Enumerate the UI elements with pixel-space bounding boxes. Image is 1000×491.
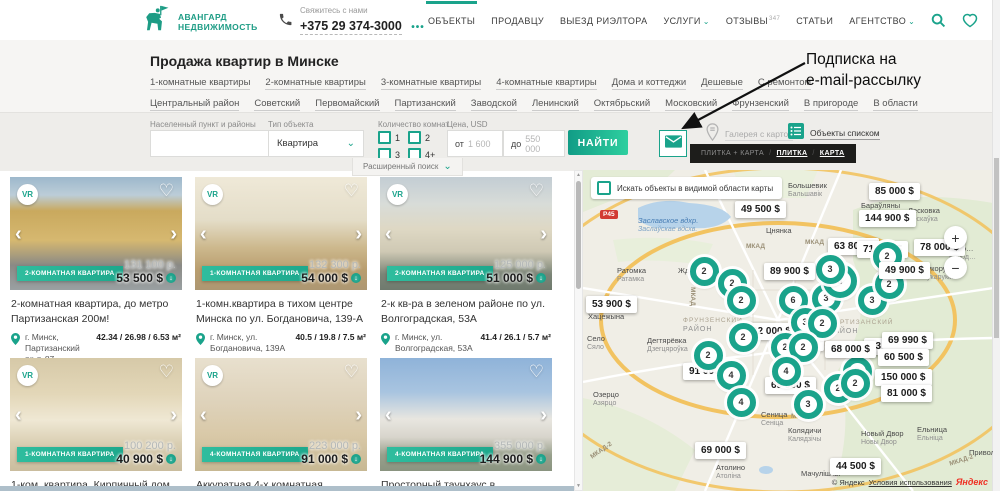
- map-price-label[interactable]: 144 900 $: [859, 210, 916, 227]
- view-mode-option[interactable]: КАРТА: [820, 150, 845, 157]
- listing-card[interactable]: VR♡‹›4-КОМНАТНАЯ КВАРТИРА223 000 р.91 00…: [195, 358, 367, 491]
- objects-list-label: Объекты списком: [810, 128, 880, 140]
- map-copyright: © Яндекс Условия использования Яндекс: [832, 477, 988, 487]
- nav-item-6[interactable]: АГЕНТСТВО⌄: [849, 1, 915, 40]
- map-place-label: Новый ДворНовы Двор: [861, 429, 904, 447]
- filter-link[interactable]: Первомайский: [315, 98, 379, 111]
- map-price-label[interactable]: 68 000 $: [825, 341, 876, 358]
- price-drop-icon: ↓: [351, 273, 361, 283]
- vr-tour-badge: VR: [202, 365, 223, 386]
- listing-photo-townhouse[interactable]: ♡‹›4-КОМНАТНАЯ КВАРТИРА355 000 р.144 900…: [380, 358, 552, 471]
- separator: /: [769, 150, 771, 157]
- map-price-label[interactable]: 49 500 $: [735, 201, 786, 218]
- price-drop-icon: ↓: [536, 273, 546, 283]
- place-name: Цнянка: [766, 226, 792, 235]
- place-name: МКАД: [689, 287, 696, 306]
- place-name: Новый Двор: [861, 429, 904, 438]
- listing-card[interactable]: VR♡‹›2-КОМНАТНАЯ КВАРТИРА125 000 р.51 00…: [380, 177, 552, 354]
- map-cluster-marker[interactable]: 4: [727, 388, 756, 417]
- chevron-down-icon: ⌄: [443, 161, 451, 172]
- map-cluster-marker[interactable]: 4: [772, 357, 801, 386]
- listing-photo-yellow-building[interactable]: VR♡‹›2-КОМНАТНАЯ КВАРТИРА131 100 р.53 50…: [10, 177, 182, 290]
- photo-prev-arrow[interactable]: ‹: [200, 408, 207, 422]
- listings-scrollbar[interactable]: ▲ ▼: [574, 170, 583, 491]
- map-pin-icon: [196, 333, 205, 354]
- type-filter-label: Тип объекта: [268, 120, 313, 129]
- yandex-map[interactable]: Искать объекты в видимой области карты Р…: [583, 170, 993, 491]
- map-place-label: МКАД: [805, 238, 824, 247]
- price-drop-icon: ↓: [536, 454, 546, 464]
- room-count-badge: 4-КОМНАТНАЯ КВАРТИРА: [202, 447, 308, 462]
- map-place-label: Бараўляны: [861, 201, 900, 210]
- listing-title[interactable]: 1-комн.квартира в тихом центре Минска по…: [196, 297, 366, 327]
- map-place-label: МКАД: [688, 287, 697, 306]
- nav-item-4[interactable]: ОТЗЫВЫ347: [726, 1, 780, 40]
- nav-item-label: ПРОДАВЦУ: [491, 16, 544, 26]
- map-cluster-marker[interactable]: 2: [808, 309, 837, 338]
- photo-prev-arrow[interactable]: ‹: [385, 227, 392, 241]
- vr-tour-badge: VR: [387, 184, 408, 205]
- search-in-map-area-checkbox[interactable]: Искать объекты в видимой области карты: [591, 177, 782, 199]
- rooms-filter-label: Количество комнат: [378, 120, 449, 129]
- price-byn: 355 000 р.: [480, 440, 546, 452]
- price-to-input[interactable]: до550 000: [503, 130, 565, 157]
- map-place-label: ОзерцоАзярцо: [593, 390, 619, 408]
- favorite-heart-icon[interactable]: ♡: [159, 181, 174, 201]
- map-price-label[interactable]: 69 990 $: [882, 332, 933, 349]
- nav-item-0[interactable]: ОБЪЕКТЫ: [428, 1, 475, 40]
- page-scrollbar[interactable]: [992, 0, 1000, 491]
- road-number-badge: Р45: [600, 210, 618, 219]
- scroll-up-arrow[interactable]: ▲: [575, 172, 582, 178]
- map-price-label[interactable]: 53 900 $: [586, 296, 637, 313]
- filter-link[interactable]: Ленинский: [532, 98, 579, 111]
- filter-link[interactable]: 1-комнатные квартиры: [150, 77, 250, 90]
- map-price-label[interactable]: 89 900 $: [764, 263, 815, 280]
- view-mode-option[interactable]: ПЛИТКА + КАРТА: [701, 150, 764, 157]
- place-name: Большевик: [788, 181, 827, 190]
- vr-tour-badge: VR: [17, 365, 38, 386]
- nav-item-3[interactable]: УСЛУГИ⌄: [663, 1, 709, 40]
- phone-label: Свяжитесь с нами: [300, 6, 425, 15]
- listing-address: г. Минск, ул. Волгоградская, 53А: [395, 332, 475, 354]
- filter-link[interactable]: 2-комнатные квартиры: [265, 77, 365, 90]
- chevron-down-icon: ⌄: [908, 17, 915, 26]
- listing-card[interactable]: VR♡‹›1-КОМНАТНАЯ КВАРТИРА132 300 р.54 00…: [195, 177, 367, 354]
- nav-item-1[interactable]: ПРОДАВЦУ: [491, 1, 544, 40]
- logo[interactable]: АВАНГАРД НЕДВИЖИМОСТЬ: [142, 4, 258, 39]
- price-block: 223 000 р.91 000 $↓: [301, 440, 361, 466]
- place-name: Колядичи: [788, 426, 821, 435]
- price-byn: 125 000 р.: [486, 259, 546, 271]
- annotation-text: Подписка на e-mail-рассылку: [806, 49, 921, 91]
- chevron-down-icon: ⌄: [347, 138, 355, 149]
- map-price-label[interactable]: 49 900 $: [879, 262, 930, 279]
- advanced-search-toggle[interactable]: Расширенный поиск⌄: [352, 158, 463, 176]
- photo-next-arrow[interactable]: ›: [170, 227, 177, 241]
- terms-of-use-link[interactable]: Условия использования: [869, 478, 952, 487]
- price-block: 132 300 р.54 000 $↓: [301, 259, 361, 285]
- vr-tour-badge: VR: [202, 184, 223, 205]
- checkbox-icon[interactable]: [597, 181, 611, 195]
- place-name: ПАРТИЗАНСКИЙ: [829, 319, 893, 326]
- favorite-heart-icon[interactable]: ♡: [529, 181, 544, 201]
- listing-photo-living-room[interactable]: VR♡‹›1-КОМНАТНАЯ КВАРТИРА132 300 р.54 00…: [195, 177, 367, 290]
- place-name-alt: Заслаўскае вдсхв.: [638, 225, 698, 234]
- filter-link[interactable]: Партизанский: [395, 98, 456, 111]
- search-in-map-area-label: Искать объекты в видимой области карты: [617, 184, 773, 193]
- map-place-label: РатомкаРатамка: [617, 266, 646, 284]
- photo-prev-arrow[interactable]: ‹: [15, 408, 22, 422]
- vr-tour-badge: VR: [17, 184, 38, 205]
- price-block: 131 100 р.53 500 $↓: [116, 259, 176, 285]
- price-block: 100 200 р.40 900 $↓: [116, 440, 176, 466]
- price-usd: 51 000 $↓: [486, 271, 546, 285]
- map-price-label[interactable]: 44 500 $: [830, 458, 881, 475]
- price-drop-icon: ↓: [351, 454, 361, 464]
- search-icon[interactable]: [931, 13, 946, 28]
- map-place-label: БольшевикБальшавік: [788, 181, 827, 199]
- price-usd: 53 500 $↓: [116, 271, 176, 285]
- map-place-label: СелоСяло: [587, 334, 605, 352]
- page-scrollbar-thumb[interactable]: [994, 158, 999, 338]
- place-name-alt: Дзегцяроўка: [647, 345, 688, 354]
- place-name: Сеница: [761, 410, 787, 419]
- room-count-badge: 2-КОМНАТНАЯ КВАРТИРА: [17, 266, 123, 281]
- price-usd-value: 54 000 $: [301, 271, 348, 285]
- listings-scrollbar-thumb[interactable]: [576, 181, 581, 289]
- map-pin-icon: [381, 333, 390, 354]
- annotation-arrow: [655, 53, 815, 143]
- map-place-label: ДегтярёвкаДзегцяроўка: [647, 336, 688, 354]
- map-cluster-marker[interactable]: 3: [816, 255, 845, 284]
- listing-title[interactable]: 2-к кв-ра в зеленом районе по ул. Волгог…: [381, 297, 551, 327]
- map-cluster-marker[interactable]: 2: [694, 341, 723, 370]
- map-place-label: МКАД: [746, 242, 765, 251]
- chevron-down-icon: ⌄: [703, 17, 710, 26]
- place-name: Ратомка: [617, 266, 646, 275]
- place-name-alt: Азярцо: [593, 399, 619, 408]
- favorite-heart-icon[interactable]: ♡: [159, 362, 174, 382]
- place-name: Село: [587, 334, 605, 343]
- photo-prev-arrow[interactable]: ‹: [15, 227, 22, 241]
- price-usd-value: 144 900 $: [480, 452, 533, 466]
- map-price-label[interactable]: 69 000 $: [695, 442, 746, 459]
- map-place-label: АтолиноАтоліна: [716, 463, 745, 481]
- price-byn: 131 100 р.: [116, 259, 176, 271]
- price-usd: 144 900 $↓: [480, 452, 546, 466]
- photo-next-arrow[interactable]: ›: [170, 408, 177, 422]
- price-byn: 223 000 р.: [301, 440, 361, 452]
- price-usd-value: 91 000 $: [301, 452, 348, 466]
- map-cluster-marker[interactable]: 2: [789, 333, 818, 362]
- place-name-alt: Сеніца: [761, 419, 787, 428]
- map-cluster-marker[interactable]: 2: [690, 257, 719, 286]
- photo-prev-arrow[interactable]: ‹: [200, 227, 207, 241]
- place-name-alt: Сяло: [587, 343, 605, 352]
- favorite-heart-icon[interactable]: ♡: [344, 362, 359, 382]
- listing-card[interactable]: ♡‹›4-КОМНАТНАЯ КВАРТИРА355 000 р.144 900…: [380, 358, 552, 491]
- price-usd: 54 000 $↓: [301, 271, 361, 285]
- nav-item-label: УСЛУГИ: [663, 16, 700, 26]
- price-drop-icon: ↓: [166, 273, 176, 283]
- filter-link[interactable]: 3-комнатные квартиры: [381, 77, 481, 90]
- filter-link[interactable]: Октябрьский: [594, 98, 650, 111]
- listing-card[interactable]: VR♡‹›2-КОМНАТНАЯ КВАРТИРА131 100 р.53 50…: [10, 177, 182, 365]
- price-byn: 100 200 р.: [116, 440, 176, 452]
- knight-logo-icon: [142, 4, 172, 39]
- map-place-label: Хацежына: [588, 312, 624, 321]
- room-count-badge: 1-КОМНАТНАЯ КВАРТИРА: [202, 266, 308, 281]
- price-usd-value: 53 500 $: [116, 271, 163, 285]
- map-price-label[interactable]: 85 000 $: [869, 183, 920, 200]
- place-name-alt: Калядзічы: [788, 435, 821, 444]
- place-name: Хацежына: [588, 312, 624, 321]
- favorite-heart-icon[interactable]: ♡: [529, 362, 544, 382]
- contact-block: Свяжитесь с нами +375 29 374-3000 •••: [278, 6, 425, 35]
- logo-text: АВАНГАРД НЕДВИЖИМОСТЬ: [178, 12, 258, 32]
- place-name-alt: Атоліна: [716, 472, 745, 481]
- main-nav: ОБЪЕКТЫПРОДАВЦУВЫЕЗД РИЭЛТОРАУСЛУГИ⌄ОТЗЫ…: [428, 0, 978, 40]
- map-cluster-marker[interactable]: 2: [729, 323, 758, 352]
- place-name: Ельница: [917, 425, 947, 434]
- filter-link[interactable]: Центральный район: [150, 98, 239, 111]
- header: АВАНГАРД НЕДВИЖИМОСТЬ Свяжитесь с нами +…: [0, 0, 1000, 41]
- place-name-alt: Новы Двор: [861, 438, 904, 447]
- separator: /: [812, 150, 814, 157]
- map-zoom-out-button[interactable]: −: [944, 256, 967, 279]
- yandex-logo[interactable]: Яндекс: [956, 477, 988, 487]
- map-zoom-in-button[interactable]: +: [944, 226, 967, 249]
- listing-photo-beige-room[interactable]: VR♡‹›2-КОМНАТНАЯ КВАРТИРА125 000 р.51 00…: [380, 177, 552, 290]
- filter-link[interactable]: В области: [873, 98, 918, 111]
- price-usd-value: 51 000 $: [486, 271, 533, 285]
- view-mode-option[interactable]: ПЛИТКА: [776, 150, 807, 157]
- location-filter-label: Населенный пункт и районы: [150, 120, 256, 129]
- nav-item-label: СТАТЬИ: [796, 16, 833, 26]
- nav-reviews-count: 347: [769, 16, 780, 22]
- nav-item-label: АГЕНТСТВО: [849, 16, 906, 26]
- price-block: 125 000 р.51 000 $↓: [486, 259, 546, 285]
- checkbox-icon: [408, 131, 421, 144]
- map-cluster-marker[interactable]: 2: [727, 286, 756, 315]
- place-name-alt: Ратамка: [617, 275, 646, 284]
- place-name: МКАД: [746, 243, 765, 250]
- price-usd-value: 40 900 $: [116, 452, 163, 466]
- listing-photo-bedroom[interactable]: VR♡‹›4-КОМНАТНАЯ КВАРТИРА223 000 р.91 00…: [195, 358, 367, 471]
- filter-link[interactable]: Заводской: [471, 98, 517, 111]
- filter-bar: Населенный пункт и районы ⌄ Тип объекта …: [0, 112, 1000, 171]
- rooms-checkbox-1[interactable]: 1: [378, 131, 400, 144]
- price-from-input[interactable]: от1 600: [447, 130, 503, 157]
- more-phones-dots[interactable]: •••: [411, 22, 425, 33]
- page: АВАНГАРД НЕДВИЖИМОСТЬ Свяжитесь с нами +…: [0, 0, 1000, 491]
- listing-card[interactable]: VR♡‹›1-КОМНАТНАЯ КВАРТИРА100 200 р.40 90…: [10, 358, 182, 491]
- map-price-label[interactable]: 81 000 $: [881, 385, 932, 402]
- room-count-badge: 1-КОМНАТНАЯ КВАРТИРА: [17, 447, 123, 462]
- phone-icon: [278, 12, 293, 32]
- place-name: Дегтярёвка: [647, 336, 686, 345]
- map-price-label[interactable]: 60 500 $: [878, 349, 929, 366]
- listing-area: 41.4 / 26.1 / 5.7 м²: [480, 332, 551, 354]
- page-title: Продажа квартир в Минске: [150, 53, 339, 69]
- object-type-select[interactable]: Квартира⌄: [268, 130, 364, 157]
- listing-photo-warm-room[interactable]: VR♡‹›1-КОМНАТНАЯ КВАРТИРА100 200 р.40 90…: [10, 358, 182, 471]
- scroll-down-arrow[interactable]: ▼: [575, 483, 582, 489]
- room-count-badge: 4-КОМНАТНАЯ КВАРТИРА: [387, 447, 493, 462]
- filter-link[interactable]: 4-комнатные квартиры: [496, 77, 596, 90]
- search-button[interactable]: НАЙТИ: [568, 130, 628, 155]
- photo-next-arrow[interactable]: ›: [355, 227, 362, 241]
- phone-number[interactable]: +375 29 374-3000: [300, 19, 402, 35]
- price-usd: 40 900 $↓: [116, 452, 176, 466]
- next-section-edge: [0, 486, 575, 491]
- place-name: Заславское вдхр.: [638, 216, 698, 225]
- map-place-label: Цнянка: [766, 226, 792, 235]
- nav-item-label: ОТЗЫВЫ: [726, 16, 768, 26]
- nav-item-5[interactable]: СТАТЬИ: [796, 1, 833, 40]
- listing-title[interactable]: 2-комнатная квартира, до метро Партизанс…: [11, 297, 181, 327]
- rooms-checkbox-label: 1: [395, 133, 400, 143]
- listing-area: 40.5 / 19.8 / 7.5 м²: [295, 332, 366, 354]
- photo-next-arrow[interactable]: ›: [540, 227, 547, 241]
- view-mode-tooltip: ПЛИТКА + КАРТА/ПЛИТКА/КАРТА: [690, 144, 856, 163]
- price-drop-icon: ↓: [166, 454, 176, 464]
- filter-link[interactable]: Советский: [254, 98, 300, 111]
- place-name: МКАД: [805, 239, 824, 246]
- price-usd: 91 000 $↓: [301, 452, 361, 466]
- favorite-heart-icon[interactable]: ♡: [344, 181, 359, 201]
- map-price-label[interactable]: 150 000 $: [875, 369, 932, 386]
- place-name-alt: Ельніца: [917, 434, 947, 443]
- map-place-label: Заславское вдхр.Заслаўскае вдсхв.: [638, 216, 698, 234]
- rooms-checkbox-2[interactable]: 2: [408, 131, 430, 144]
- photo-prev-arrow[interactable]: ‹: [385, 408, 392, 422]
- map-place-label: ЕльницаЕльніца: [917, 425, 947, 443]
- place-name: Бараўляны: [861, 201, 900, 210]
- photo-next-arrow[interactable]: ›: [540, 408, 547, 422]
- price-byn: 132 300 р.: [301, 259, 361, 271]
- place-name-alt: Бальшавік: [788, 190, 827, 199]
- nav-item-2[interactable]: ВЫЕЗД РИЭЛТОРА: [560, 1, 647, 40]
- listing-location-row: г. Минск, ул. Волгоградская, 53А41.4 / 2…: [381, 332, 551, 354]
- listing-location-row: г. Минск, ул. Богдановича, 139А40.5 / 19…: [196, 332, 366, 354]
- place-name: ФРУНЗЕНСКИЙ: [683, 317, 743, 324]
- map-place-label: КолядичиКалядзічы: [788, 426, 821, 444]
- listing-address: г. Минск, ул. Богдановича, 139А: [210, 332, 290, 354]
- photo-next-arrow[interactable]: ›: [355, 408, 362, 422]
- map-cluster-marker[interactable]: 2: [841, 369, 870, 398]
- rooms-checkbox-label: 2: [425, 133, 430, 143]
- place-name: Озерцо: [593, 390, 619, 399]
- room-count-badge: 2-КОМНАТНАЯ КВАРТИРА: [387, 266, 493, 281]
- price-filter-label: Цена, USD: [447, 120, 488, 129]
- map-cluster-marker[interactable]: 4: [717, 361, 746, 390]
- place-name: Атолино: [716, 463, 745, 472]
- nav-item-label: ВЫЕЗД РИЭЛТОРА: [560, 16, 647, 26]
- price-block: 355 000 р.144 900 $↓: [480, 440, 546, 466]
- nav-item-label: ОБЪЕКТЫ: [428, 16, 475, 26]
- checkbox-icon: [378, 131, 391, 144]
- map-place-label: СеницаСеніца: [761, 410, 787, 428]
- map-cluster-marker[interactable]: 3: [794, 390, 823, 419]
- favorites-heart-icon[interactable]: [962, 13, 978, 28]
